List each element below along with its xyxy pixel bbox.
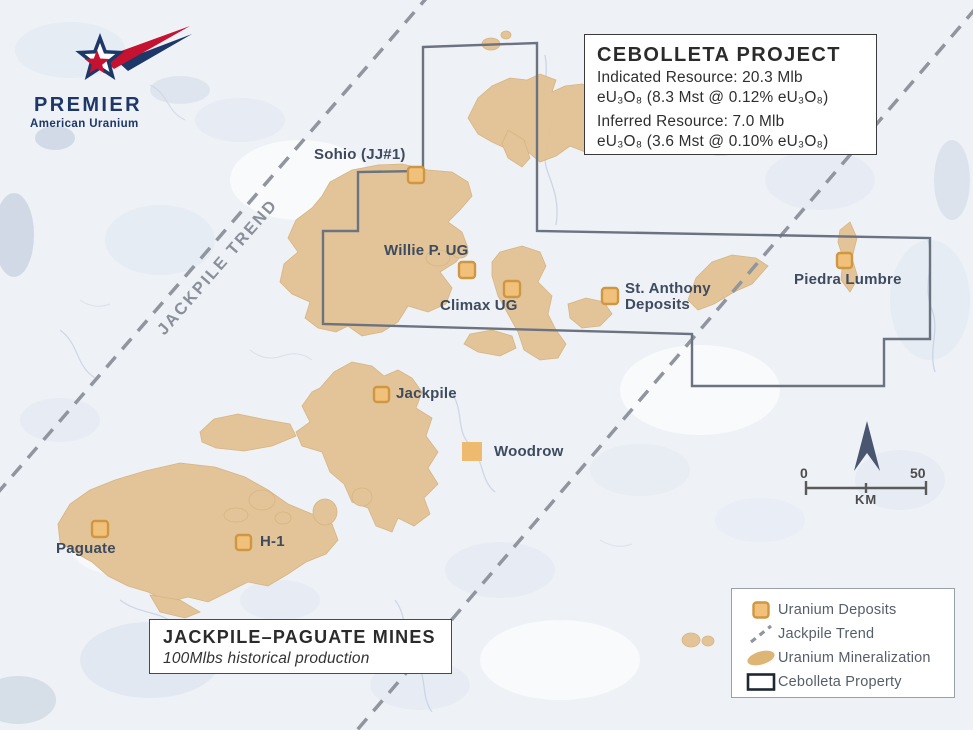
scale-end-label: 50 [910,465,926,481]
indicated-resource-line: Indicated Resource: 20.3 Mlb [597,68,864,88]
legend-label: Cebolleta Property [778,674,902,690]
mines-box-subtitle: 100Mlbs historical production [163,649,438,669]
map-label-willie: Willie P. UG [384,243,469,259]
map-label-woodrow: Woodrow [494,444,563,460]
legend-label: Jackpile Trend [778,626,874,642]
map-label-piedra-lumbre: Piedra Lumbre [794,272,902,288]
jackpile-paguate-mines-box: JACKPILE–PAGUATE MINES 100Mlbs historica… [149,619,452,674]
deposit-marker-st-anthony [602,288,618,304]
map-legend: Uranium Deposits Jackpile Trend Uranium … [731,588,955,698]
deposit-marker-willie [459,262,475,278]
map-label-climax: Climax UG [440,298,518,314]
dashed-trend-line-icon [744,624,778,644]
inferred-resource-line: Inferred Resource: 7.0 Mlb [597,112,864,132]
mines-box-title: JACKPILE–PAGUATE MINES [163,626,438,649]
logo-name: PREMIER [34,94,142,117]
legend-label: Uranium Deposits [778,602,896,618]
deposit-marker-paguate [92,521,108,537]
indicated-resource-detail: eU₃O₈ (8.3 Mst @ 0.12% eU₃O₈) [597,88,864,108]
scale-start-label: 0 [800,465,808,481]
legend-item-deposits: Uranium Deposits [744,598,944,622]
map-label-paguate: Paguate [56,541,116,557]
premier-american-uranium-logo: PREMIER American Uranium [22,22,212,134]
deposit-marker-h1 [236,535,251,550]
legend-label: Uranium Mineralization [778,650,931,666]
scale-unit-label: KM [855,492,877,507]
legend-item-property: Cebolleta Property [744,670,944,694]
map-label-st-anthony: St. Anthony Deposits [625,281,723,313]
woodrow-square [462,442,482,461]
deposit-marker-climax [504,281,520,297]
deposit-marker-sohio [408,167,424,183]
map-label-sohio: Sohio (JJ#1) [314,147,406,163]
map-label-h1: H-1 [260,534,285,550]
uranium-deposit-square-icon [744,600,778,620]
cebolleta-project-info-box: CEBOLLETA PROJECT Indicated Resource: 20… [584,34,877,155]
deposit-marker-piedra-lumbre [837,253,852,268]
logo-tagline: American Uranium [30,118,139,130]
legend-item-mineralization: Uranium Mineralization [744,646,944,670]
legend-item-trend: Jackpile Trend [744,622,944,646]
info-box-title: CEBOLLETA PROJECT [597,43,864,68]
map-label-jackpile: Jackpile [396,386,457,402]
mineralization-blob-icon [744,648,778,668]
map-canvas: JACKPILE TREND Sohio (JJ#1) Willie P. UG… [0,0,973,730]
property-boundary-icon [744,672,778,692]
deposit-marker-jackpile [374,387,389,402]
inferred-resource-detail: eU₃O₈ (3.6 Mst @ 0.10% eU₃O₈) [597,132,864,152]
